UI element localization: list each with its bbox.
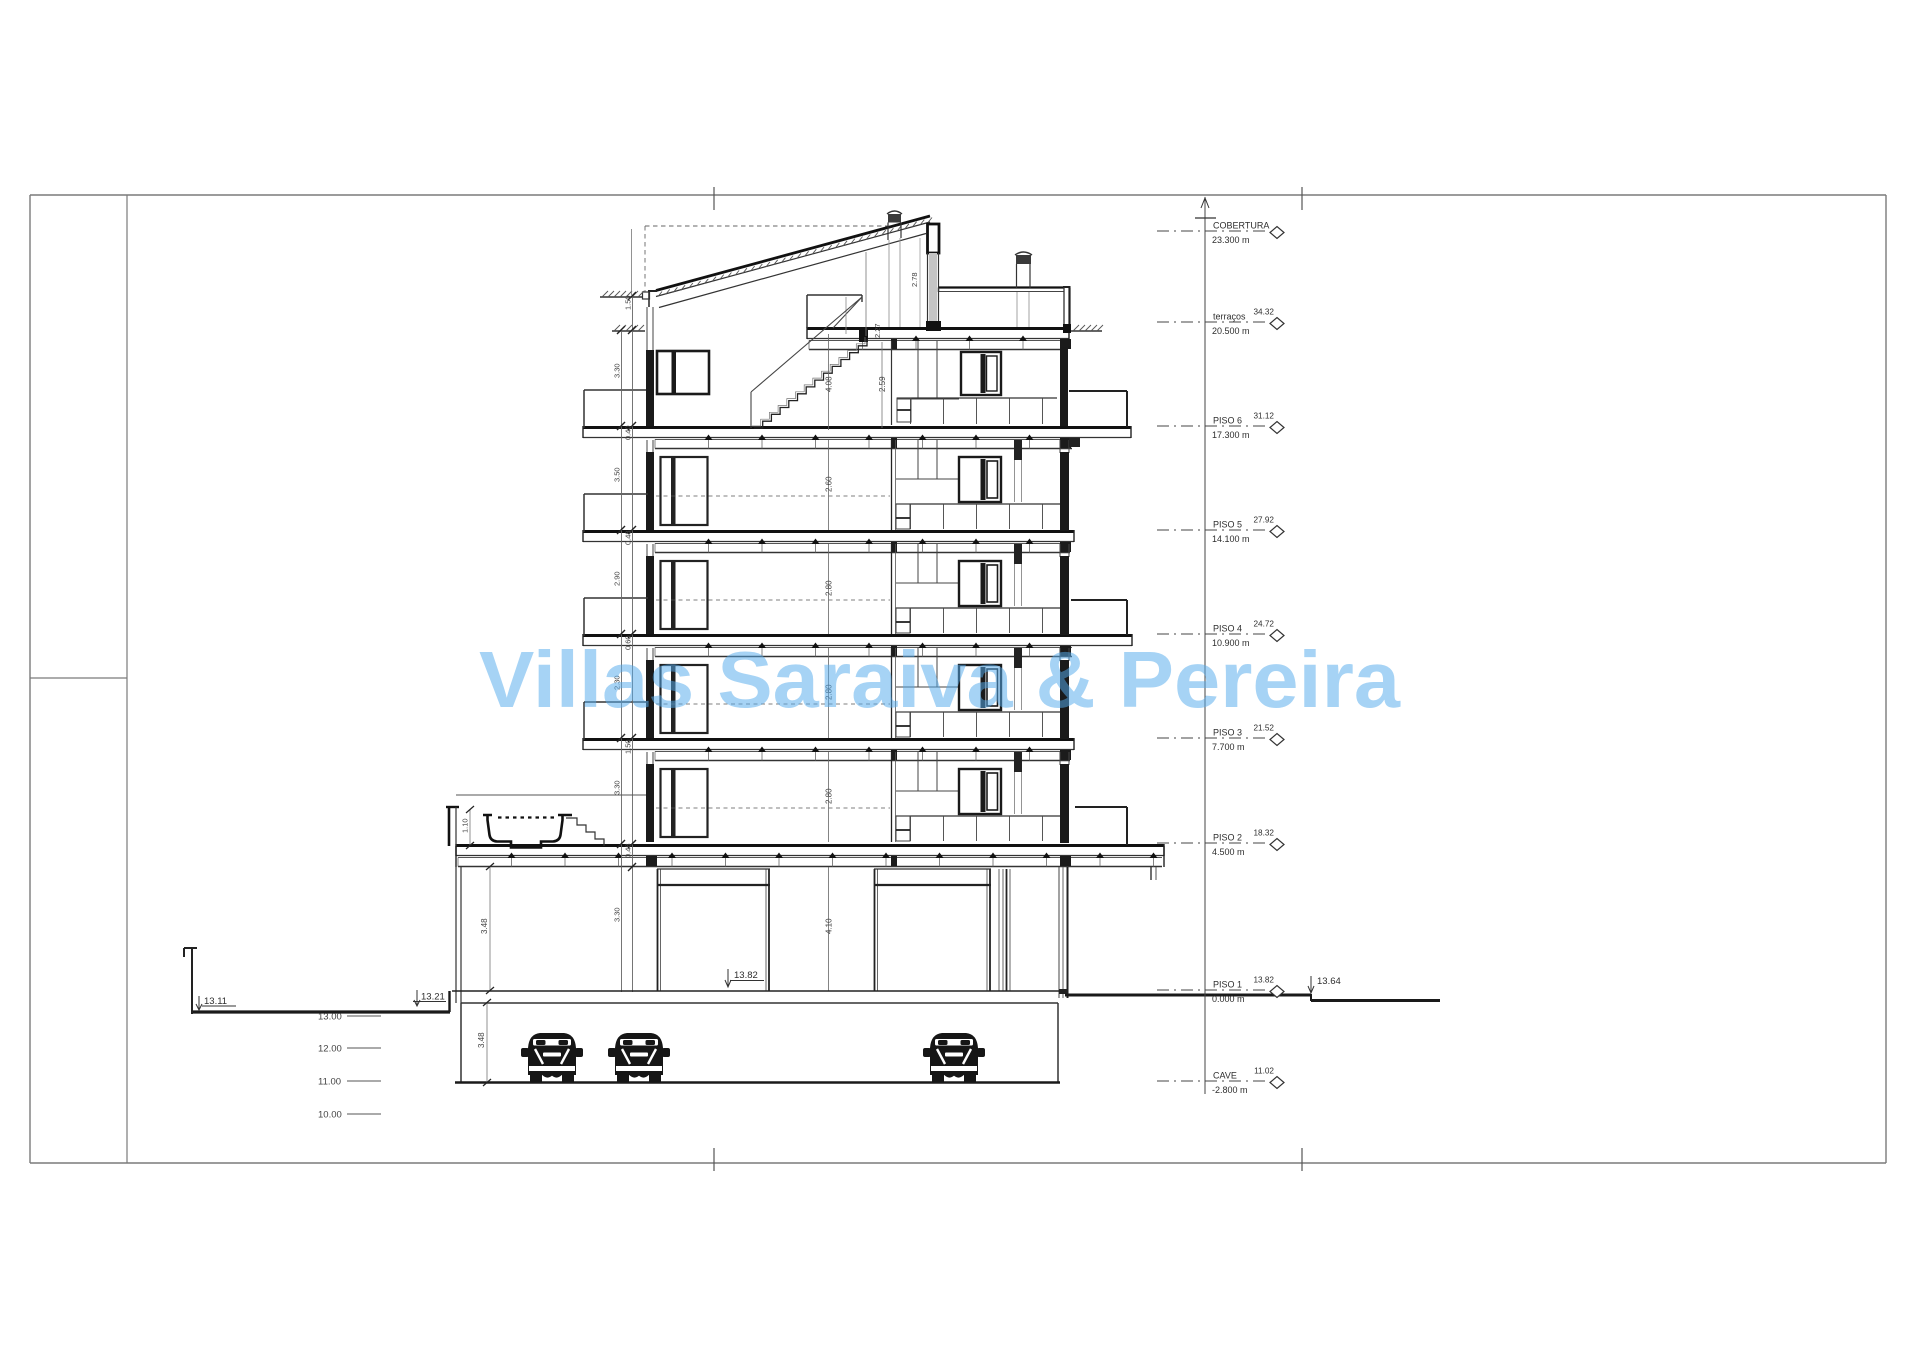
svg-text:18.32: 18.32 bbox=[1254, 829, 1275, 838]
svg-text:3.48: 3.48 bbox=[477, 1032, 486, 1048]
svg-text:13.64: 13.64 bbox=[1317, 976, 1341, 987]
svg-text:3.30: 3.30 bbox=[613, 780, 622, 795]
svg-text:20.500 m: 20.500 m bbox=[1212, 326, 1250, 336]
svg-text:3.30: 3.30 bbox=[613, 907, 622, 922]
svg-text:2.90: 2.90 bbox=[613, 571, 622, 586]
svg-text:2.27: 2.27 bbox=[873, 323, 882, 338]
svg-text:0.000 m: 0.000 m bbox=[1212, 994, 1245, 1004]
svg-text:COBERTURA: COBERTURA bbox=[1213, 221, 1269, 231]
svg-text:31.12: 31.12 bbox=[1254, 412, 1275, 421]
svg-text:17.300 m: 17.300 m bbox=[1212, 430, 1250, 440]
svg-text:24.72: 24.72 bbox=[1254, 620, 1275, 629]
svg-text:7.700 m: 7.700 m bbox=[1212, 742, 1245, 752]
svg-text:10.00: 10.00 bbox=[318, 1110, 342, 1121]
svg-text:11.02: 11.02 bbox=[1254, 1067, 1274, 1076]
svg-text:3.30: 3.30 bbox=[613, 363, 622, 378]
svg-text:21.52: 21.52 bbox=[1254, 724, 1275, 733]
svg-text:terraços: terraços bbox=[1213, 312, 1246, 322]
svg-text:PISO 1: PISO 1 bbox=[1213, 980, 1242, 990]
svg-text:PISO 2: PISO 2 bbox=[1213, 833, 1242, 843]
svg-text:PISO 4: PISO 4 bbox=[1213, 624, 1242, 634]
svg-text:13.21: 13.21 bbox=[421, 992, 445, 1003]
svg-text:CAVE: CAVE bbox=[1213, 1071, 1237, 1081]
svg-text:27.92: 27.92 bbox=[1254, 516, 1275, 525]
svg-text:2.80: 2.80 bbox=[825, 788, 834, 804]
svg-text:2.59: 2.59 bbox=[878, 376, 887, 392]
svg-text:1.50: 1.50 bbox=[624, 739, 633, 754]
svg-text:4.10: 4.10 bbox=[825, 918, 834, 934]
svg-text:PISO 6: PISO 6 bbox=[1213, 416, 1242, 426]
svg-text:PISO 3: PISO 3 bbox=[1213, 728, 1242, 738]
svg-text:13.82: 13.82 bbox=[1254, 976, 1275, 985]
svg-text:3.48: 3.48 bbox=[480, 918, 489, 934]
svg-text:1.50: 1.50 bbox=[624, 295, 633, 310]
svg-text:4.08: 4.08 bbox=[825, 376, 834, 392]
svg-text:13.11: 13.11 bbox=[204, 996, 227, 1007]
svg-text:1.10: 1.10 bbox=[461, 818, 470, 833]
svg-text:2.60: 2.60 bbox=[825, 476, 834, 492]
svg-text:2.78: 2.78 bbox=[910, 272, 919, 287]
svg-text:2.80: 2.80 bbox=[825, 580, 834, 596]
svg-text:0.40: 0.40 bbox=[624, 425, 633, 440]
svg-text:11.00: 11.00 bbox=[318, 1077, 341, 1088]
svg-text:14.100 m: 14.100 m bbox=[1212, 534, 1250, 544]
svg-text:0.48: 0.48 bbox=[624, 530, 633, 545]
svg-text:0.48: 0.48 bbox=[624, 843, 633, 858]
svg-text:34.32: 34.32 bbox=[1254, 308, 1275, 317]
svg-text:PISO 5: PISO 5 bbox=[1213, 520, 1242, 530]
svg-text:3.50: 3.50 bbox=[613, 467, 622, 482]
svg-text:12.00: 12.00 bbox=[318, 1044, 342, 1055]
svg-text:-2.800 m: -2.800 m bbox=[1212, 1085, 1248, 1095]
svg-text:13.00: 13.00 bbox=[318, 1012, 342, 1023]
svg-text:23.300 m: 23.300 m bbox=[1212, 235, 1250, 245]
svg-text:4.500 m: 4.500 m bbox=[1212, 847, 1245, 857]
svg-text:Villas Saraiva & Pereira: Villas Saraiva & Pereira bbox=[479, 635, 1401, 724]
svg-text:13.82: 13.82 bbox=[734, 970, 758, 981]
